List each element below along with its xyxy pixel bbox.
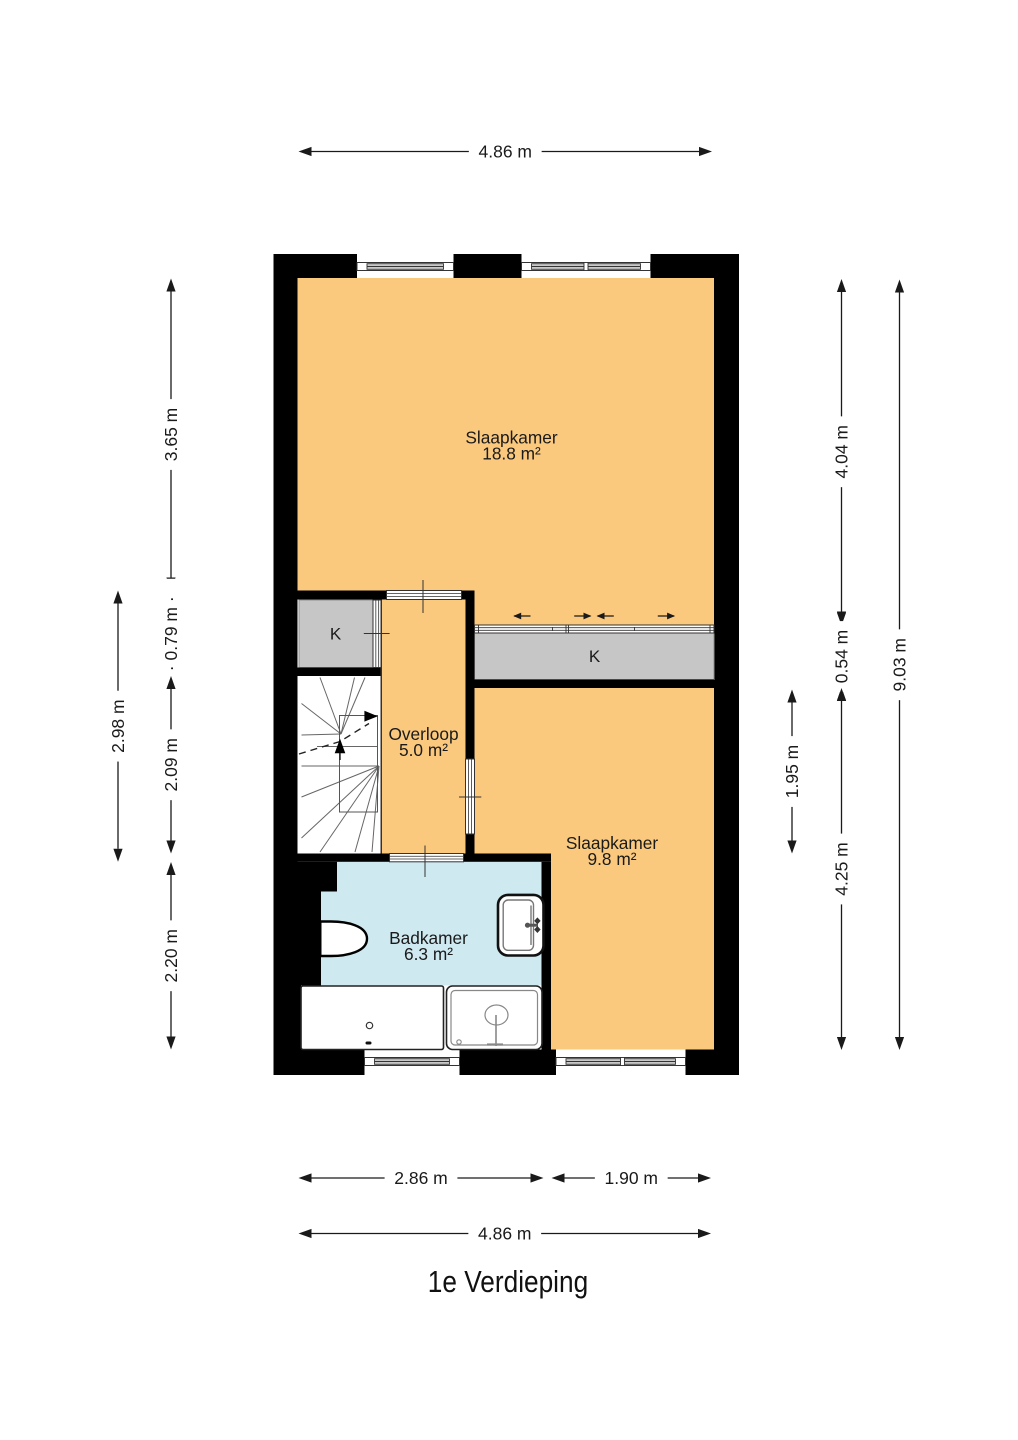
svg-text:9.8 m²: 9.8 m²: [588, 849, 637, 869]
svg-text:2.98 m: 2.98 m: [108, 699, 128, 753]
svg-text:5.0 m²: 5.0 m²: [399, 740, 448, 760]
svg-text:4.86 m: 4.86 m: [478, 1224, 532, 1244]
svg-text:2.86 m: 2.86 m: [394, 1168, 448, 1188]
svg-text:1.90 m: 1.90 m: [605, 1168, 659, 1188]
svg-text:18.8 m²: 18.8 m²: [482, 443, 541, 463]
svg-text:4.86 m: 4.86 m: [479, 141, 533, 161]
svg-text:4.25 m: 4.25 m: [832, 842, 852, 896]
svg-text:1e Verdieping: 1e Verdieping: [428, 1265, 588, 1299]
svg-text:3.65 m: 3.65 m: [161, 408, 181, 462]
svg-text:2.09 m: 2.09 m: [161, 738, 181, 792]
svg-text:2.20 m: 2.20 m: [161, 929, 181, 983]
svg-text:4.04 m: 4.04 m: [832, 425, 852, 479]
svg-text:· 0.79 m ·: · 0.79 m ·: [161, 596, 181, 671]
svg-text:K: K: [330, 625, 342, 644]
svg-text:6.3 m²: 6.3 m²: [404, 944, 453, 964]
svg-text:0.54 m: 0.54 m: [832, 630, 852, 684]
svg-text:K: K: [589, 647, 601, 666]
svg-text:9.03 m: 9.03 m: [890, 638, 910, 692]
svg-text:1.95 m: 1.95 m: [782, 745, 802, 799]
